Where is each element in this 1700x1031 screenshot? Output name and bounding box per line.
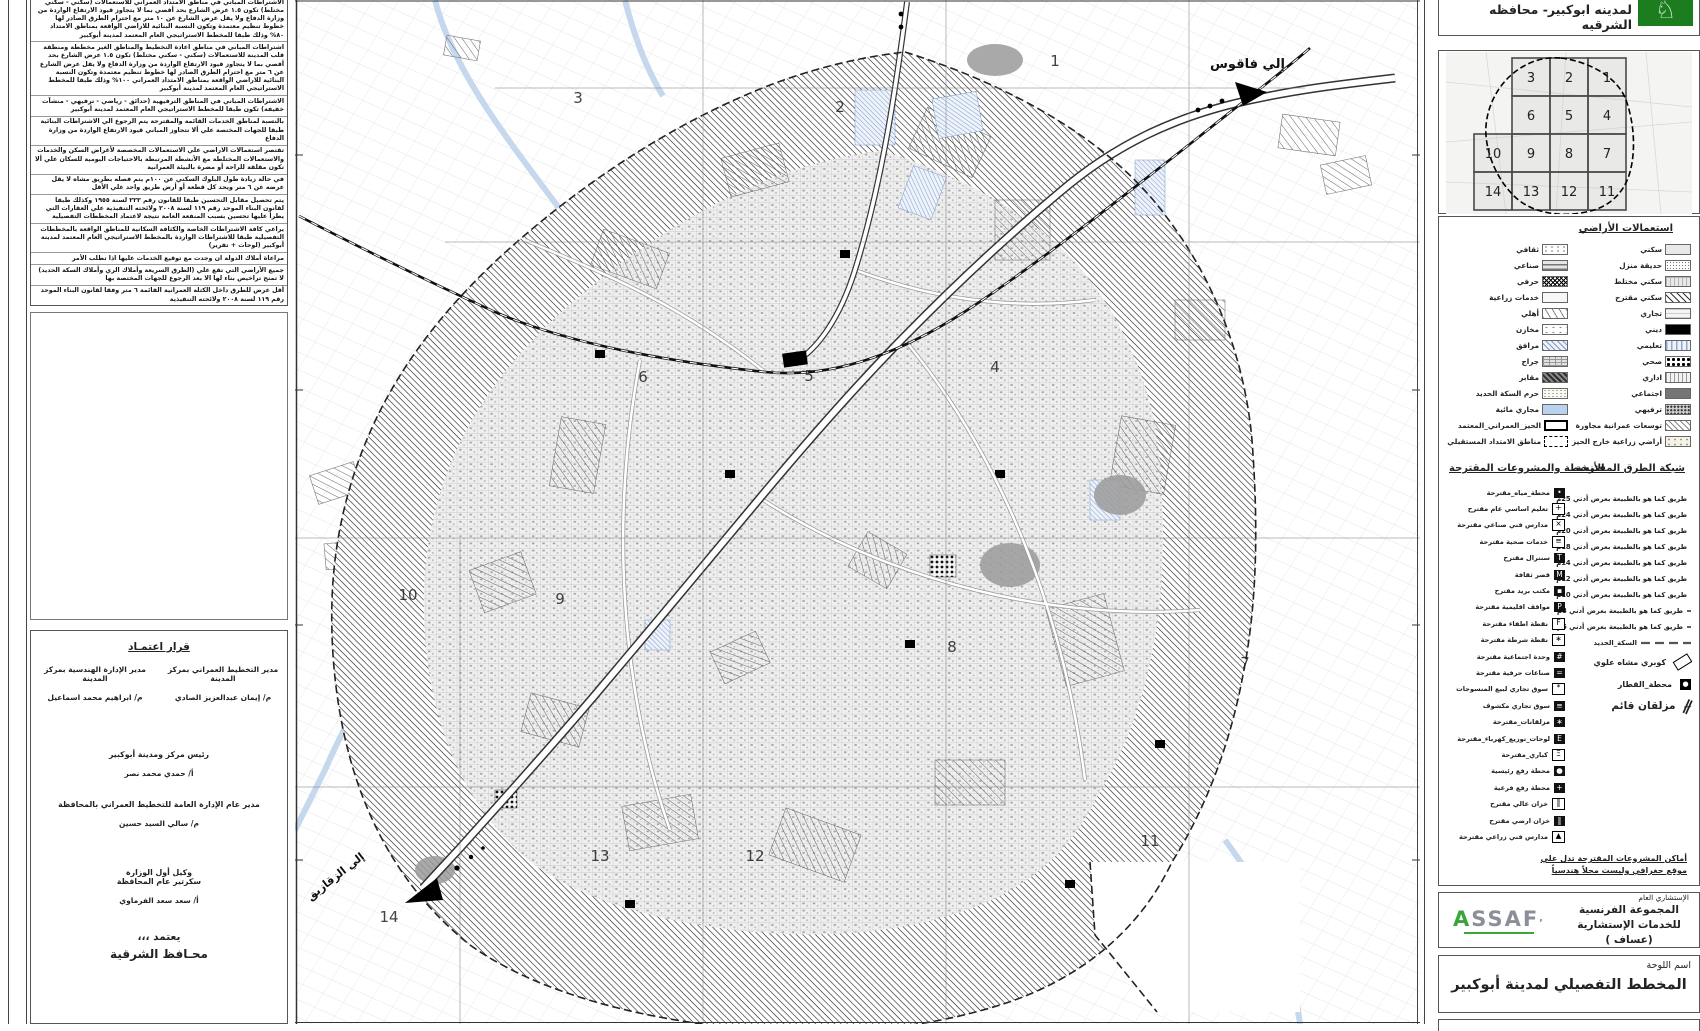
approval-left-signatory: مدير الإدارة الهندسية بمركز المدينة م/ ا…: [31, 665, 159, 702]
sheet-number: 14: [379, 908, 398, 926]
index-sheet-number: 7: [1603, 147, 1611, 162]
legend-swatch: [1542, 356, 1568, 367]
road-legend-row: طريق كما هو بالطبيعة بعرض أدني 8م: [1557, 603, 1691, 619]
index-sheet-number: 9: [1527, 147, 1535, 162]
activity-row: محطة رفع فرعية+: [1447, 782, 1565, 793]
land-use-label: ترفيهي: [1635, 405, 1662, 414]
activity-row: مزلقانات_مقترحة∗: [1447, 716, 1565, 727]
land-use-label: خدمات زراعية: [1489, 293, 1539, 302]
plate-name: المخطط التفصيلي لمدينة أبوكبير: [1439, 977, 1699, 993]
road-label: طريق كما هو بالطبيعة بعرض أدني 10م: [1556, 591, 1687, 599]
index-sheet-number: 4: [1603, 109, 1611, 124]
land-use-label: مخازن: [1516, 325, 1539, 334]
project-icon: ×: [1552, 519, 1565, 531]
activity-row: صناعات حرفية مقترحة=: [1447, 667, 1565, 678]
requirement-paragraph: يتم تحصيل مقابل التحسين طبقا للقانون رقم…: [31, 194, 287, 223]
sheet-number: 3: [573, 89, 583, 107]
legend-swatch: [1665, 292, 1691, 303]
land-use-label: أراضي زراعية خارج الحيز: [1572, 437, 1662, 446]
legend-swatch: [1665, 260, 1691, 271]
project-icon: ▲: [1552, 831, 1565, 843]
activity-row: نقطة اطفاء مقترحةF: [1447, 618, 1565, 629]
activity-label: مزلقانات_مقترحة: [1493, 718, 1550, 726]
land-use-label: حديقة منزل: [1619, 261, 1662, 270]
legend-swatch: [1665, 340, 1691, 351]
road-legend-row: طريق كما هو بالطبيعة بعرض أدني 18م: [1557, 539, 1691, 555]
road-label: طريق كما هو بالطبيعة بعرض أدني 24م: [1556, 511, 1687, 519]
activity-row: مكتب بريد مقترح▪: [1447, 585, 1565, 596]
road-label: محطة_القطار: [1618, 680, 1672, 689]
requirement-paragraph: تقتصر استعمالات الاراضي علي الاستعمالات …: [31, 145, 287, 174]
approval-footer: يعتمد ،،، محـافظ الشرقية: [31, 931, 287, 961]
sheet-frame-line: [8, 0, 9, 1024]
index-sheet-number: 14: [1485, 185, 1502, 200]
project-icon: ▪: [1554, 586, 1565, 596]
land-use-label: ثقافي: [1516, 245, 1539, 254]
index-sheet-number: 8: [1565, 147, 1573, 162]
road-legend-row: طريق كما هو بالطبيعة بعرض أدني 25م: [1557, 491, 1691, 507]
legend-swatch: [1544, 436, 1568, 447]
sheet-number: 8: [947, 638, 957, 656]
project-icon: ‖: [1554, 816, 1565, 826]
road-legend-list: طريق كما هو بالطبيعة بعرض أدني 25مطريق ك…: [1557, 491, 1691, 717]
land-use-label: تعليمي: [1637, 341, 1662, 350]
activity-row: مواقف اقليمية مقترحةP: [1447, 602, 1565, 613]
project-icon: ∗: [1554, 717, 1565, 727]
road-legend-row: طريق كما هو بالطبيعة بعرض أدني 10م: [1557, 587, 1691, 603]
legend-swatch: [1665, 372, 1691, 383]
legend-swatch: [1542, 244, 1568, 255]
activity-row: خدمات صحية مقترحة≡: [1447, 536, 1565, 547]
sheet-number: 5: [804, 367, 814, 385]
road-legend-row: طريق كما هو بالطبيعة بعرض أدني 20م: [1557, 523, 1691, 539]
land-use-label: حرفي: [1517, 277, 1539, 286]
legend-swatch: [1542, 308, 1568, 319]
road-legend-row: طريق كما هو بالطبيعة بعرض أدني 24م: [1557, 507, 1691, 523]
land-use-label: اداري: [1642, 373, 1662, 382]
legend-swatch: [1665, 388, 1691, 399]
activity-row: لوحات_توزيع_كهرباء_مقترحةE: [1447, 733, 1565, 744]
activity-row: مدارس فني زراعي مقترحة▲: [1447, 831, 1565, 842]
road-label: طريق كما هو بالطبيعة بعرض أدني 14م: [1556, 559, 1687, 567]
activity-row: تعليم اساسي عام مقترح+: [1447, 503, 1565, 514]
land-use-label: توسعات عمرانية مجاورة: [1576, 421, 1662, 430]
land-use-label: اجتماعي: [1631, 389, 1662, 398]
requirement-paragraph: بالنسبة لمناطق الخدمات القائمة والمقترحة…: [31, 116, 287, 145]
road-label: طريق كما هو بالطبيعة بعرض أدني 8م: [1557, 607, 1683, 615]
activity-row: سوق تجاري مكشوف≡: [1447, 700, 1565, 711]
road-label: طريق كما هو بالطبيعة بعرض أدني 6م: [1557, 623, 1683, 631]
activity-label: مكتب بريد مقترح: [1495, 587, 1550, 595]
road-label: طريق كما هو بالطبيعة بعرض أدني 20م: [1556, 527, 1687, 535]
requirement-paragraph: قطعة الأرض التي تقع علي شارعين مختلفي ال…: [31, 306, 287, 307]
activity-label: نقطة اطفاء مقترحة: [1482, 620, 1548, 628]
project-icon: P: [1554, 602, 1565, 612]
legend-swatch: [1665, 404, 1691, 415]
sheet-number: 9: [555, 590, 565, 608]
activity-label: مدارس فني صناعي مقترحة: [1457, 521, 1548, 529]
activity-row: محطة رفع رئيسية●: [1447, 766, 1565, 777]
building-requirements-box: الاشتراطات المباني في مناطق الامتداد الع…: [30, 0, 288, 306]
project-icon: ●: [1554, 766, 1565, 776]
approval-title: قرار اعتمـاد: [31, 641, 287, 653]
sheet-number: 12: [745, 847, 764, 865]
project-icon: •: [1554, 488, 1565, 498]
legend-swatch: [1665, 436, 1691, 447]
activity-label: قصر ثقافة: [1515, 571, 1550, 579]
project-icon: ‖: [1552, 798, 1565, 810]
land-use-label: مقابر: [1519, 373, 1539, 382]
legend-swatch: [1542, 372, 1568, 383]
project-icon: M: [1554, 570, 1565, 580]
road-label: طريق كما هو بالطبيعة بعرض أدني 18م: [1556, 543, 1687, 551]
land-use-row: مخازنديني: [1445, 321, 1691, 337]
project-icon: ≡: [1554, 701, 1565, 711]
index-sheet-number: 2: [1565, 71, 1573, 86]
approval-right-signatory: مدير التخطيط العمراني بمركز المدينة م/ إ…: [159, 665, 287, 702]
activity-label: كباري_مقترحة: [1501, 751, 1548, 759]
map-frame-line: [1417, 0, 1418, 1024]
land-use-label: سكني مختلط: [1614, 277, 1662, 286]
land-use-label: صناعي: [1514, 261, 1539, 270]
road-label: طريق كما هو بالطبيعة بعرض أدني 12م: [1556, 575, 1687, 583]
sheet-number: 1: [1050, 52, 1060, 70]
sheet-number: 7: [1240, 654, 1250, 672]
legend-box: استعمالات الأراضي ثقافيسكنيصناعيحديقة من…: [1438, 216, 1700, 886]
project-icon: =: [1554, 668, 1565, 678]
plate-label: اسم اللوحة: [1439, 956, 1699, 971]
road-legend-row: السكة_الحديد: [1557, 635, 1691, 651]
road-label: مزلقان قائم: [1611, 700, 1675, 712]
level-crossing-icon: ∦: [1682, 700, 1693, 712]
road-legend-row: طريق كما هو بالطبيعة بعرض أدني 6م: [1557, 619, 1691, 635]
project-icon: ∗: [1552, 634, 1565, 646]
project-icon: T: [1554, 553, 1565, 563]
land-use-row: أهليتجاري: [1445, 305, 1691, 321]
land-use-row: جراجصحي: [1445, 353, 1691, 369]
activity-label: خزان ارضي مقترح: [1489, 817, 1550, 825]
legend-swatch: [1542, 388, 1568, 399]
requirement-paragraph: أقل عرض للطرق داخل الكتلة العمرانية القا…: [31, 285, 287, 306]
road-label: طريق كما هو بالطبيعة بعرض أدني 25م: [1556, 495, 1687, 503]
governorate-logo-icon: ♘: [1638, 0, 1693, 26]
activity-row: نقطة شرطة مقترحة∗: [1447, 635, 1565, 646]
activity-row: كباري_مقترحةΞ: [1447, 749, 1565, 760]
activity-label: محطة_مياه_مقترحة: [1487, 489, 1550, 497]
activity-label: مدارس فني زراعي مقترحة: [1459, 833, 1548, 841]
legend-swatch: [1542, 260, 1568, 271]
road-legend-special-row: محطة_القطار●: [1557, 673, 1691, 695]
requirement-paragraph: الاشتراطات المباني في المناطق الترفيهية …: [31, 95, 287, 116]
legend-swatch: [1542, 292, 1568, 303]
project-icon: Ξ: [1552, 749, 1565, 761]
land-use-label: مجاري مائية: [1496, 405, 1539, 414]
activity-label: مواقف اقليمية مقترحة: [1475, 603, 1550, 611]
index-sheet-number: 5: [1565, 109, 1573, 124]
activity-row: محطة_مياه_مقترحة•: [1447, 487, 1565, 498]
land-use-label: سكني مقترح: [1615, 293, 1662, 302]
requirement-paragraph: يراعي كافة الاشتراطات الخاصة والكثافة ال…: [31, 223, 287, 252]
index-sheet-number: 13: [1523, 185, 1540, 200]
index-sheet-number: 12: [1561, 185, 1578, 200]
sheet-number: 4: [990, 358, 1000, 376]
activity-label: نقطة شرطة مقترحة: [1481, 636, 1548, 644]
road-label: السكة_الحديد: [1594, 639, 1637, 647]
sheet-number: 10: [398, 586, 417, 604]
requirement-paragraph: اشتراطات المباني في مناطق اعادة التخطيط …: [31, 41, 287, 95]
approval-center2: مدير عام الإدارة العامة للتخطيط العمراني…: [31, 800, 287, 828]
index-sheet-number: 1: [1603, 71, 1611, 86]
project-icon: #: [1554, 652, 1565, 662]
to-faqous-label: إلي فاقوس: [1210, 57, 1285, 72]
plate-name-box: اسم اللوحة المخطط التفصيلي لمدينة أبوكبي…: [1438, 955, 1700, 1013]
requirement-paragraph: جميع الأراضي التي تقع علي (الطرق السريعة…: [31, 264, 287, 285]
legend-swatch: [1665, 356, 1691, 367]
approval-decision-box: قرار اعتمـاد مدير التخطيط العمراني بمركز…: [30, 630, 288, 1024]
index-map-box: 3216541098714131211: [1438, 50, 1700, 214]
activity-row: مدارس فني صناعي مقترحة×: [1447, 520, 1565, 531]
sheet-number: 13: [590, 847, 609, 865]
approval-center1: رئيس مركز ومدينة أبوكبير أ/ حمدي محمد نص…: [31, 750, 287, 778]
land-use-list: ثقافيسكنيصناعيحديقة منزلحرفيسكني مختلطخد…: [1445, 241, 1691, 449]
empty-panel: [30, 312, 288, 620]
sheet-number: 2: [835, 98, 845, 116]
land-use-row: صناعيحديقة منزل: [1445, 257, 1691, 273]
land-use-row: مناطق الامتداد المستقبليأراضي زراعية خار…: [1445, 433, 1691, 449]
road-legend-row: طريق كما هو بالطبيعة بعرض أدني 14م: [1557, 555, 1691, 571]
land-use-heading: استعمالات الأراضي: [1579, 223, 1673, 234]
activities-legend-list: محطة_مياه_مقترحة•تعليم اساسي عام مقترح+م…: [1447, 487, 1565, 848]
land-use-row: مجاري مائيةترفيهي: [1445, 401, 1691, 417]
next-panel-edge: [1438, 1019, 1700, 1031]
land-use-row: حرفيسكني مختلط: [1445, 273, 1691, 289]
sheet-number: 6: [638, 368, 648, 386]
land-use-label: صحي: [1642, 357, 1662, 366]
activity-row: خزان عالي مقترح‖: [1447, 798, 1565, 809]
activity-label: محطة رفع رئيسية: [1491, 767, 1550, 775]
requirement-paragraph: مراعاة أملاك الدولة ان وجدت مع توقيع الخ…: [31, 252, 287, 264]
consultant-name1: المجموعة الفرنسية: [1559, 903, 1699, 918]
project-icon: *: [1552, 683, 1565, 695]
land-use-label: مرافق: [1516, 341, 1539, 350]
approval-center3: وكيل أول الوزارة سكرتير عام المحافظة أ/ …: [31, 868, 287, 905]
land-use-label: الحيز_العمراني_المعتمد: [1458, 421, 1541, 430]
legend-swatch: [1542, 340, 1568, 351]
activity-row: سوق تجاري لبيع المنسوجات*: [1447, 684, 1565, 695]
legend-swatch: [1665, 420, 1691, 431]
road-legend-row: طريق كما هو بالطبيعة بعرض أدني 12م: [1557, 571, 1691, 587]
consultant-box: الإستشاري العام المجموعة الفرنسية للخدما…: [1438, 892, 1700, 948]
land-use-label: حرم السكة الحديد: [1476, 389, 1539, 398]
land-use-label: تجاري: [1640, 309, 1662, 318]
land-use-label: سكني: [1640, 245, 1662, 254]
land-use-row: خدمات زراعيةسكني مقترح: [1445, 289, 1691, 305]
land-use-label: ديني: [1645, 325, 1662, 334]
legend-swatch: [1665, 308, 1691, 319]
legend-swatch: [1665, 244, 1691, 255]
land-use-label: أهلي: [1521, 309, 1539, 318]
land-use-row: مرافقتعليمي: [1445, 337, 1691, 353]
legend-swatch: [1542, 276, 1568, 287]
activity-label: تعليم اساسي عام مقترح: [1468, 505, 1548, 513]
projects-footnote: أماكن المشروعات المقترحة تدل علي موقع جغ…: [1540, 853, 1687, 877]
activity-label: محطة رفع فرعية: [1494, 784, 1550, 792]
road-legend-special-row: مزلقان قائم∦: [1557, 695, 1691, 717]
land-use-row: حرم السكة الحديداجتماعي: [1445, 385, 1691, 401]
bridge-icon: [1673, 653, 1693, 670]
legend-swatch: [1665, 276, 1691, 287]
activity-label: سنترال مقترح: [1503, 554, 1550, 562]
index-sheet-number: 10: [1485, 147, 1502, 162]
activity-row: وحدة اجتماعية مقترحة#: [1447, 651, 1565, 662]
activity-label: وحدة اجتماعية مقترحة: [1477, 653, 1550, 661]
activity-label: سوق تجاري مكشوف: [1483, 702, 1550, 710]
activity-label: لوحات_توزيع_كهرباء_مقترحة: [1457, 735, 1550, 743]
land-use-row: ثقافيسكني: [1445, 241, 1691, 257]
project-icon: +: [1554, 783, 1565, 793]
activity-label: سوق تجاري لبيع المنسوجات: [1456, 685, 1548, 693]
requirement-paragraph: الاشتراطات المباني في مناطق الامتداد الع…: [31, 0, 287, 41]
activity-row: خزان ارضي مقترح‖: [1447, 815, 1565, 826]
map-frame-line: [1424, 0, 1425, 1024]
index-sheet-number: 6: [1527, 109, 1535, 124]
legend-swatch: [1542, 324, 1568, 335]
legend-swatch: [1542, 404, 1568, 415]
index-sheet-number: 11: [1599, 185, 1616, 200]
sheet-number: 11: [1140, 832, 1159, 850]
activity-row: قصر ثقافةM: [1447, 569, 1565, 580]
activity-label: خدمات صحية مقترحة: [1479, 538, 1548, 546]
land-use-row: الحيز_العمراني_المعتمدتوسعات عمرانية مجا…: [1445, 417, 1691, 433]
legend-swatch: [1544, 420, 1568, 431]
land-use-label: جراج: [1521, 357, 1539, 366]
road-legend-special-row: كوبري مشاه علوي: [1557, 651, 1691, 673]
activity-row: سنترال مقترحT: [1447, 553, 1565, 564]
legend-swatch: [1665, 324, 1691, 335]
index-sheet-number: 3: [1527, 71, 1535, 86]
activity-label: صناعات حرفية مقترحة: [1476, 669, 1550, 677]
activities-heading: الأنشطة والمشروعات المقترحة: [1449, 463, 1605, 474]
project-icon: +: [1552, 503, 1565, 515]
assaf-logo: ASSAF’: [1439, 907, 1559, 934]
consultant-role: الإستشاري العام: [1559, 893, 1699, 904]
activity-label: خزان عالي مقترح: [1490, 800, 1548, 808]
project-icon: F: [1552, 618, 1565, 630]
requirement-paragraph: في حالة زيادة طول البلوك السكني عن ١٠٠م …: [31, 174, 287, 195]
city-map: إلي فاقوس إلي الزقازيق 12345678910111213…: [295, 0, 1420, 1024]
land-use-label: مناطق الامتداد المستقبلي: [1447, 437, 1541, 446]
consultant-name2: للخدمات الإستشارية (عساف ): [1559, 918, 1699, 947]
project-icon: ≡: [1552, 536, 1565, 548]
title-bar: لمدينه ابوكبير- محافظه الشرقيه ♘: [1438, 0, 1700, 36]
land-use-row: مقابراداري: [1445, 369, 1691, 385]
train-station-icon: ●: [1680, 679, 1691, 690]
project-icon: E: [1554, 734, 1565, 744]
sheet-frame-line: [26, 0, 27, 1024]
road-label: كوبري مشاه علوي: [1594, 658, 1666, 667]
sheet-title: لمدينه ابوكبير- محافظه الشرقيه: [1439, 0, 1638, 32]
